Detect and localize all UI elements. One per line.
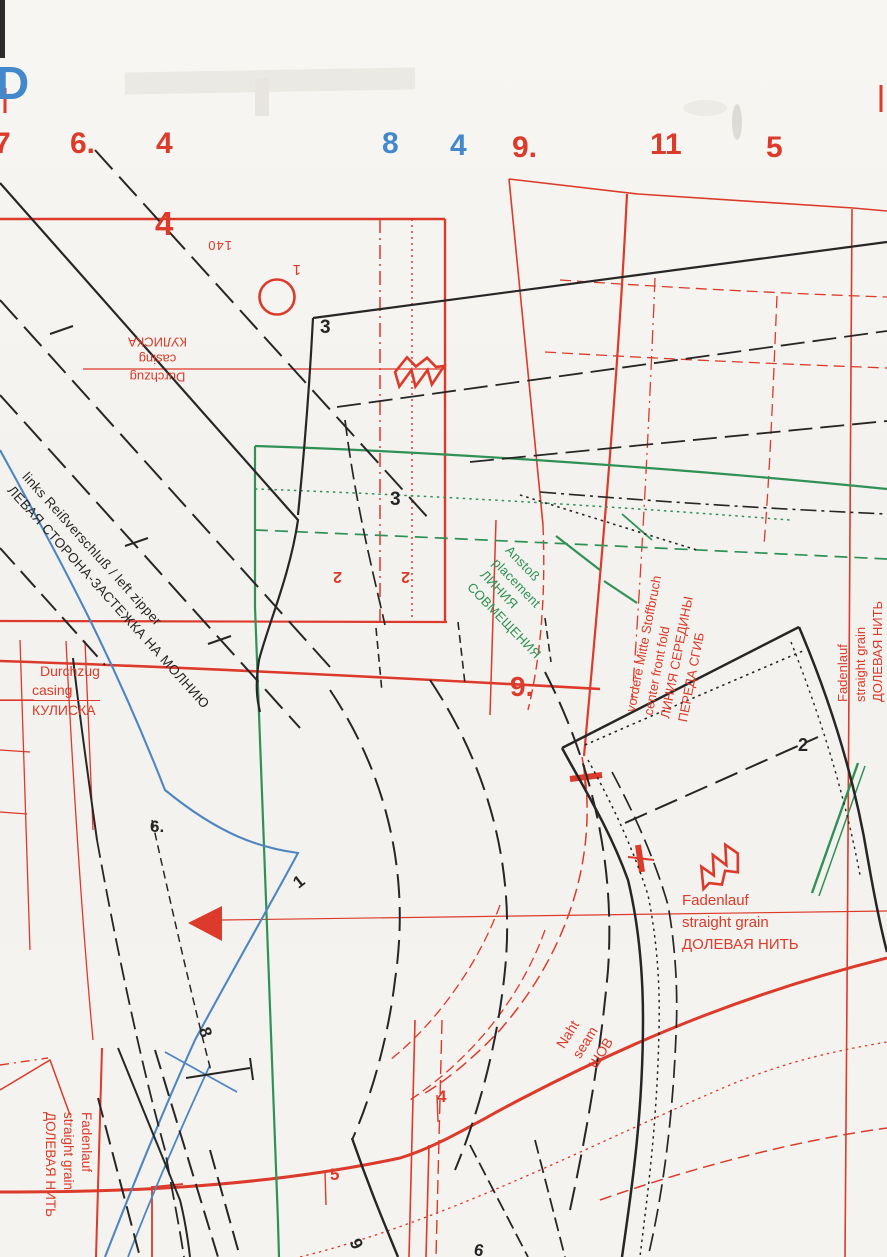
- casing-left-line-de: Durchzug: [32, 662, 100, 681]
- casing-top-line-de: Durchzug: [95, 368, 220, 386]
- grain-mid-line-ru: ДОЛЕВАЯ НИТЬ: [682, 934, 799, 956]
- casing-emblem-mid: [690, 842, 748, 895]
- grain-right-line-de: Fadenlauf: [834, 601, 852, 702]
- sheet-corner-letter: D: [0, 58, 29, 109]
- grain-bl-line-en: straight grain: [59, 1112, 77, 1217]
- casing-emblem-top: [393, 354, 445, 392]
- grain-mid-line-en: straight grain: [682, 912, 799, 934]
- grainline-label-mid: Fadenlauf straight grain ДОЛЕВАЯ НИТЬ: [682, 890, 799, 955]
- piece-number-5-small: 5: [330, 1166, 339, 1185]
- piece-number-3b: 3: [390, 490, 401, 511]
- top-number-4a: 4: [156, 127, 173, 160]
- piece-number-2-red-b: 2: [401, 567, 410, 585]
- grain-bl-line-de: Fadenlauf: [77, 1112, 95, 1217]
- green-placement-lines: [255, 446, 887, 1257]
- top-number-7: 7: [0, 127, 11, 160]
- pattern-sheet: D 7 6. 4 8 4 9. 11 5 4 140 1 3 3 Durchzu…: [0, 0, 887, 1257]
- casing-left-line-en: casing: [32, 681, 100, 700]
- top-number-6: 6.: [70, 127, 95, 160]
- top-number-5: 5: [766, 131, 783, 164]
- grainline-triangle-marker: [188, 906, 222, 941]
- casing-label-left: Durchzug casing КУЛИСКА: [32, 662, 100, 720]
- casing-label-top: Durchzug casing КУЛИСКА: [95, 333, 220, 386]
- piece-number-9: 9.: [510, 672, 533, 703]
- top-number-4b: 4: [450, 129, 467, 162]
- casing-top-line-en: casing: [95, 351, 220, 369]
- size-circle-marker: [260, 280, 295, 315]
- size-label-140: 140: [207, 238, 232, 252]
- piece-number-2-red-a: 2: [333, 567, 342, 585]
- sheet-edge-mark: [0, 0, 5, 58]
- piece-number-2-black: 2: [798, 736, 808, 756]
- match-cross-marks: [570, 765, 654, 872]
- casing-left-line-ru: КУЛИСКА: [0, 700, 100, 720]
- size-index-1: 1: [293, 261, 301, 278]
- piece-number-6: 6.: [150, 818, 164, 837]
- casing-top-line-ru: КУЛИСКА: [95, 333, 220, 351]
- top-number-8: 8: [382, 127, 399, 160]
- piece-number-3a: 3: [320, 318, 331, 339]
- grainline-label-bottom-left: Fadenlauf straight grain ДОЛЕВАЯ НИТЬ: [40, 1112, 95, 1217]
- top-number-11: 11: [650, 128, 682, 161]
- grain-bl-line-ru: ДОЛЕВАЯ НИТЬ: [40, 1112, 58, 1217]
- piece-number-4-small: 4: [437, 1088, 446, 1107]
- grain-right-line-en: straight grain: [852, 601, 870, 702]
- top-number-9: 9.: [512, 131, 537, 164]
- piece-number-4-large: 4: [155, 206, 173, 242]
- grainline-label-right: Fadenlauf straight grain ДОЛЕВАЯ НИТЬ: [834, 601, 887, 702]
- grain-mid-line-de: Fadenlauf: [682, 890, 799, 912]
- grain-right-line-ru: ДОЛЕВАЯ НИТЬ: [869, 601, 887, 702]
